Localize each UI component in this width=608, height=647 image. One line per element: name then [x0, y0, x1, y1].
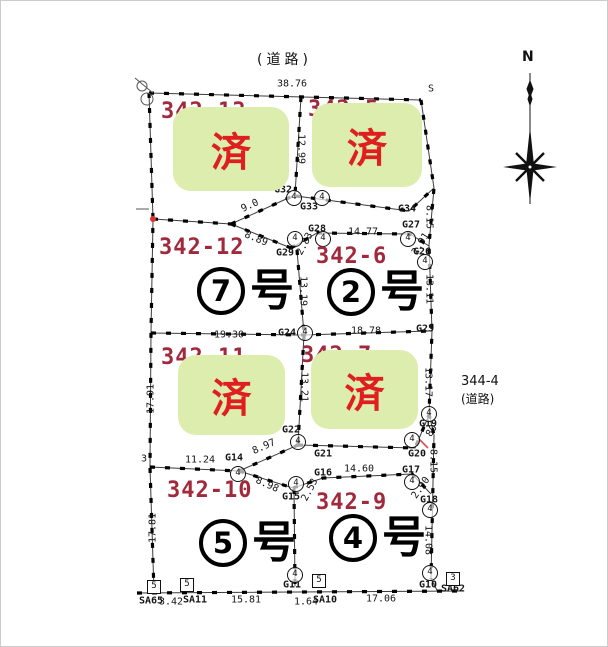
- survey-point-label: G29: [276, 248, 294, 259]
- survey-point-label: SA65: [139, 596, 163, 607]
- measurement-label: 13.11: [424, 274, 435, 304]
- survey-point-label: G34: [398, 204, 416, 215]
- survey-point-label: G16: [314, 468, 332, 479]
- measurement-label: 17.91: [146, 384, 157, 414]
- measurement-label: 17.81: [148, 513, 159, 543]
- measurement-label: 14.60: [344, 464, 374, 475]
- measurement-label: 18.78: [351, 326, 381, 337]
- unit-suffix: 号: [382, 516, 426, 560]
- measurement-label: 13.19: [298, 276, 309, 306]
- compass-rose-icon: [503, 73, 557, 204]
- unit-circle-5: 5: [199, 519, 247, 567]
- unit-circle-7: 7: [197, 267, 245, 315]
- survey-point-label: G15: [282, 492, 300, 503]
- measurement-label: 8.15: [428, 449, 439, 473]
- unit-suffix: 号: [252, 521, 296, 565]
- measurement-label: 15.81: [231, 595, 261, 606]
- unit-circle-4: 4: [329, 514, 377, 562]
- survey-marker-square: 5: [180, 578, 194, 592]
- survey-marker-square: 3: [446, 572, 460, 586]
- measurement-label: 8.15: [424, 205, 435, 229]
- unit-label-2: 2 号: [327, 268, 424, 316]
- sold-badge-342-13: 済: [173, 107, 289, 191]
- survey-marker-circle: 4: [287, 231, 303, 247]
- measurement-label: 13.21: [299, 372, 310, 402]
- survey-point-label: G24: [278, 328, 296, 339]
- unit-label-5: 5 号: [199, 519, 296, 567]
- survey-point-label: SA11: [183, 595, 207, 606]
- survey-point-label: G25: [416, 324, 434, 335]
- survey-marker-circle: 4: [290, 434, 306, 450]
- measurement-label: 3: [141, 454, 147, 465]
- survey-marker-square: 5: [147, 580, 161, 594]
- survey-point-label: G14: [225, 453, 243, 464]
- survey-point-label: G21: [314, 449, 332, 460]
- lot-number-342-12: 342-12: [159, 235, 244, 260]
- unit-suffix: 号: [250, 269, 294, 313]
- survey-point-label: G10: [419, 580, 437, 591]
- measurement-label: 19.30: [214, 330, 244, 341]
- road-label-top: (道路): [257, 49, 312, 69]
- measurement-label: 12.99: [296, 134, 307, 164]
- survey-marker-circle: 4: [421, 406, 437, 422]
- measurement-label: 38.76: [277, 79, 307, 90]
- measurement-label: 17.06: [366, 594, 396, 605]
- survey-point-label: G20: [408, 449, 426, 460]
- measurement-label: S: [428, 84, 434, 95]
- lot-number-342-10: 342-10: [167, 478, 252, 503]
- north-label: N: [522, 49, 534, 65]
- sold-badge-342-5: 済: [312, 103, 422, 187]
- lot-number-342-9: 342-9: [316, 490, 387, 515]
- unit-circle-2: 2: [327, 268, 375, 316]
- survey-marker-circle: 4: [297, 325, 313, 341]
- survey-marker-circle: 4: [287, 567, 303, 583]
- unit-label-4: 4 号: [329, 514, 426, 562]
- sold-badge-342-11: 済: [178, 355, 285, 435]
- survey-marker-circle: 4: [314, 190, 330, 206]
- road-right-caption: (道路): [461, 391, 499, 408]
- boundary-lines: [1, 1, 608, 647]
- survey-marker-square: 5: [312, 574, 326, 588]
- road-label-right: 344-4 (道路): [461, 373, 499, 408]
- measurement-label: 11.24: [185, 455, 215, 466]
- cadastral-survey-map: (道路) 344-4 (道路) N 342-13 342-5 342-12 34…: [0, 0, 608, 647]
- road-right-lot-number: 344-4: [461, 373, 499, 391]
- survey-point-label: SA10: [313, 595, 337, 606]
- survey-marker-circle: 4: [400, 231, 416, 247]
- survey-marker-circle: 4: [288, 476, 304, 492]
- unit-suffix: 号: [380, 270, 424, 314]
- measurement-label: 13.17: [423, 367, 434, 397]
- unit-label-7: 7 号: [197, 267, 294, 315]
- survey-marker-circle: 4: [422, 565, 438, 581]
- measurement-label: 14.77: [348, 227, 378, 238]
- lot-number-342-6: 342-6: [316, 244, 387, 269]
- survey-marker-circle: 4: [286, 190, 302, 206]
- survey-point-label: G27: [402, 220, 420, 231]
- survey-marker-circle: 4: [404, 474, 420, 490]
- survey-marker-circle: 4: [404, 432, 420, 448]
- sold-badge-342-7: 済: [311, 350, 418, 429]
